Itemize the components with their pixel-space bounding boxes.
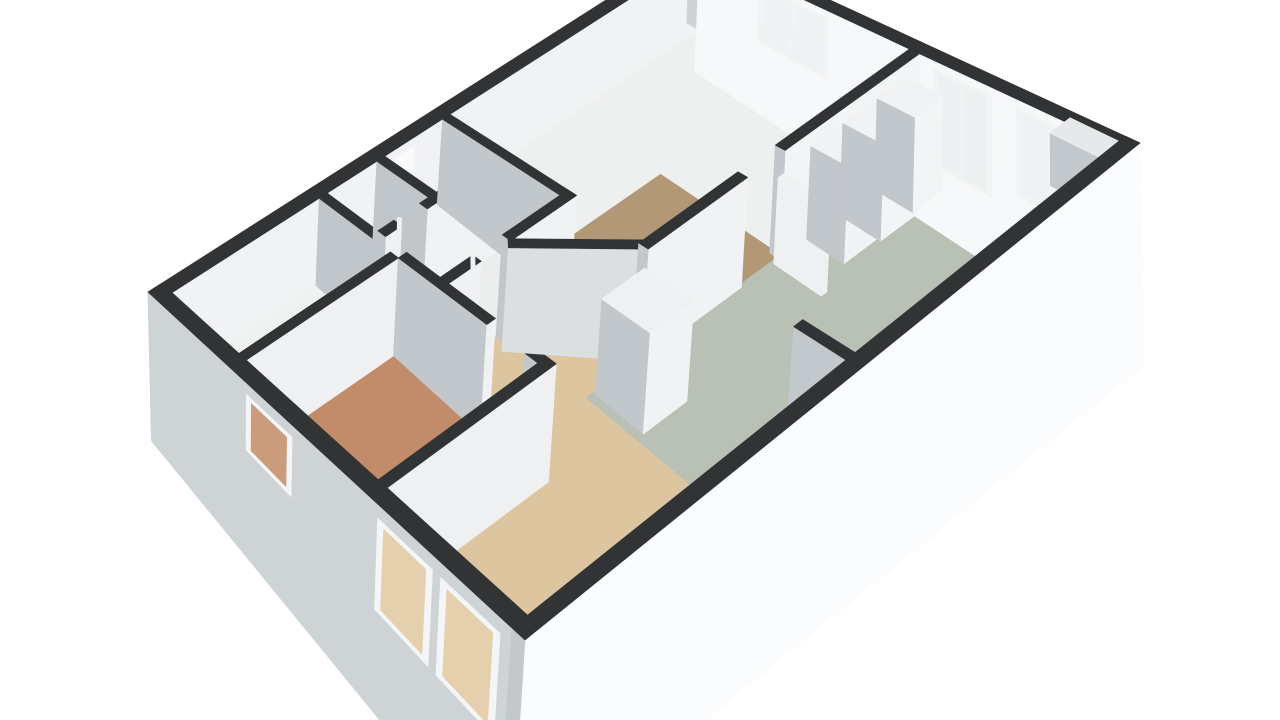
door-leaf-hall-top bbox=[471, 251, 475, 274]
door-balcony-mullion-0 bbox=[960, 85, 964, 178]
door-leaf-bathroom-top bbox=[397, 218, 402, 242]
floorplan-scene bbox=[0, 0, 1280, 720]
wall-chamfer-top bbox=[508, 239, 646, 249]
floorplan-viewport bbox=[0, 0, 1280, 720]
floorplan-3d-render bbox=[0, 0, 1280, 720]
